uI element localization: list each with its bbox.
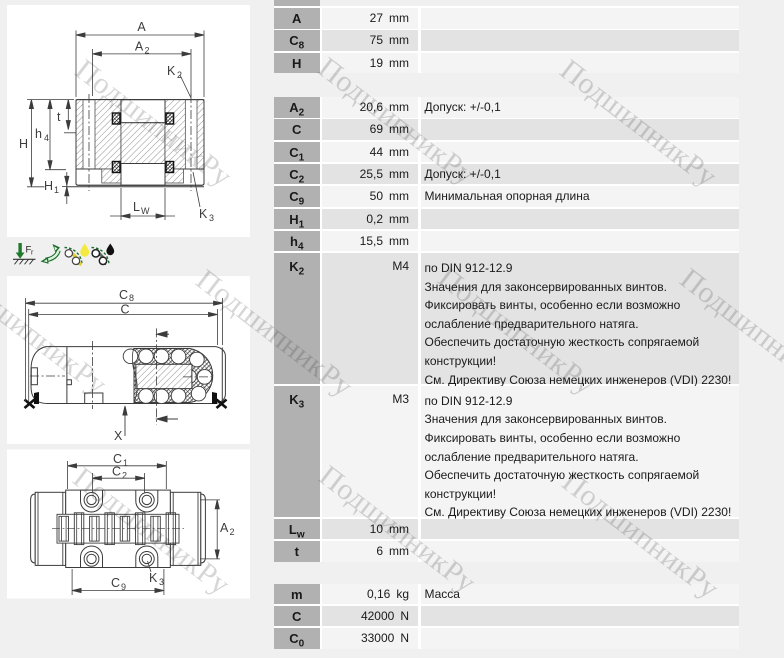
svg-text:t: t — [57, 110, 61, 124]
svg-text:r: r — [31, 250, 34, 257]
svg-text:C: C — [111, 576, 120, 590]
svg-text:C: C — [112, 465, 121, 479]
svg-text:h: h — [35, 127, 42, 141]
svg-text:A: A — [135, 40, 144, 54]
svg-text:C: C — [121, 303, 130, 317]
svg-text:W: W — [141, 206, 150, 216]
svg-text:C: C — [119, 288, 128, 302]
svg-text:1: 1 — [54, 185, 59, 195]
svg-text:4: 4 — [44, 133, 49, 143]
svg-text:2: 2 — [122, 471, 127, 481]
svg-text:3: 3 — [159, 577, 164, 587]
svg-text:9: 9 — [121, 582, 126, 592]
svg-text:H: H — [44, 179, 53, 193]
svg-text:K: K — [199, 207, 208, 221]
svg-text:K: K — [149, 571, 158, 585]
svg-text:1: 1 — [123, 458, 128, 468]
svg-text:L: L — [133, 200, 140, 214]
svg-text:K: K — [167, 64, 176, 78]
svg-text:H: H — [19, 137, 28, 151]
svg-text:A: A — [137, 20, 146, 34]
svg-text:X: X — [114, 429, 123, 443]
svg-text:8: 8 — [129, 293, 134, 303]
svg-text:2: 2 — [144, 46, 149, 56]
svg-text:2: 2 — [177, 70, 182, 80]
